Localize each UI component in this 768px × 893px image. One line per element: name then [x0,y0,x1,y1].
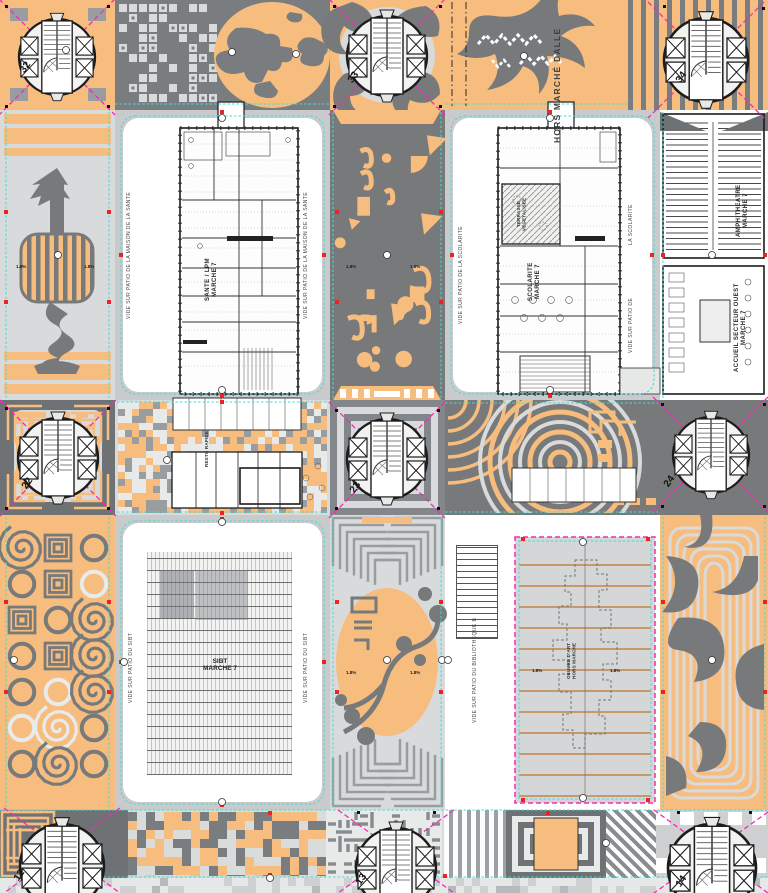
pattern-cell [300,430,307,437]
label-terrasse-line2: VEGETALISEE [521,186,526,242]
pattern-cell [223,444,230,451]
pattern-cell [321,493,327,500]
pattern-cell [286,437,293,444]
pattern-cell [176,886,184,893]
pattern-cell [125,472,132,479]
pattern-cell [232,878,240,886]
pattern-cell [146,451,153,458]
pattern-cell [46,608,70,632]
pattern-cell [240,878,248,886]
pattern-cell [218,866,227,875]
pattern-cell [368,742,397,771]
pattern-cell [18,616,26,624]
pattern-cell [361,150,372,167]
pattern-cell [152,886,160,893]
pattern-cell [281,848,290,857]
pattern-cell [314,493,321,500]
pattern-cell [263,830,272,839]
pattern-cell [139,465,146,472]
pattern-cell [118,493,125,500]
pattern-cell [280,878,288,886]
pattern-cell [128,878,136,886]
pattern-cell [568,878,576,886]
pattern-cell [179,94,187,102]
label-vide-sibt-right: VIDE SUR PATIO DU SIBT [303,598,309,738]
pattern-cell [632,878,640,886]
pattern-cell [146,848,155,857]
pattern-cell [321,500,327,507]
pattern-cell [251,444,258,451]
pattern-cell [367,289,375,299]
pattern-cell [300,444,307,451]
pattern-cell [218,839,227,848]
pattern-cell [164,830,173,839]
pattern-cell [202,57,205,60]
pattern-cell [230,444,237,451]
pattern-cell [132,486,139,493]
pattern-cell [472,886,480,893]
pattern-cell [146,465,153,472]
pattern-cell [230,437,237,444]
pattern-cell [288,886,296,893]
pattern-cell [265,430,272,437]
pattern-cell [321,437,327,444]
pattern-cell [528,886,536,893]
pattern-cell [248,878,256,886]
pattern-cell [118,430,125,437]
pattern-cell [299,857,308,866]
pattern-cell [173,812,182,821]
pattern-cell [144,878,152,886]
pattern-cell [321,423,327,430]
pattern-cell [118,444,125,451]
pattern-cell [146,875,155,876]
pattern-cell [308,812,317,821]
pattern-cell [54,580,62,588]
pattern-cell [152,37,155,40]
pattern-cell [164,848,173,857]
pattern-cell [314,486,321,493]
pattern-cell [137,866,146,875]
pattern-cell [299,821,308,830]
pattern-cell [223,437,230,444]
site-plan-canvas: HORS MARCHÉ DALLE VIDE SUR PATIO DE LA M… [0,0,768,893]
pattern-cell [296,878,304,886]
artwork-outline [553,545,617,800]
pattern-cell [118,472,125,479]
pattern-cell [290,866,299,875]
pattern-cell [181,430,188,437]
pattern-cell [146,416,153,423]
pattern-cell [125,409,132,416]
pattern-cell [139,4,147,12]
pattern-cell [224,878,232,886]
pattern-cell [160,416,167,423]
pattern-cell [544,878,552,886]
pattern-cell [155,848,164,857]
pattern-cell [189,64,197,72]
pattern-cell [119,4,127,12]
pattern-cell [153,416,160,423]
pattern-cell [139,402,146,409]
pattern-cell [149,64,157,72]
pattern-cell [118,458,125,465]
pattern-cell [159,94,167,102]
pattern-cell [308,821,317,830]
pattern-cell [512,878,520,886]
label-accueil-line1: ACCUEIL SECTEUR OUEST [734,280,741,376]
pattern-cell [536,886,544,893]
pattern-cell [218,830,227,839]
pattern-cell [168,886,176,893]
pattern-cell [128,830,137,839]
pattern-cell [368,553,397,582]
pattern-cell [293,430,300,437]
pattern-cell [314,423,321,430]
pattern-cell [357,197,370,216]
pattern-cell [223,430,230,437]
pattern-cell [317,821,326,830]
pattern-cell [132,423,139,430]
pattern-cell [188,437,195,444]
label-sante-line2: MARCHE 7 [212,225,219,335]
pattern-cell [132,87,135,90]
pattern-cell [504,878,512,886]
pattern-cell [164,866,173,875]
label-scolarite-line1: SCOLARITE [528,232,535,332]
pattern-cell [245,839,254,848]
pattern-cell [209,430,216,437]
pattern-cell [14,612,31,629]
pattern-cell [146,458,153,465]
pattern-cell [308,866,317,875]
pattern-cell [624,886,632,893]
pattern-cell [212,97,215,100]
pattern-cell [146,409,153,416]
pattern-cell [288,878,296,886]
pattern-cell [520,878,528,886]
pattern-cell [153,500,160,507]
slope-note: 1.8% [84,264,94,269]
pattern-cell [128,812,137,821]
pattern-cell [528,878,536,886]
pattern-cell [10,644,34,668]
pattern-cell [176,878,184,886]
pattern-cell [395,351,412,368]
pattern-cell [415,302,428,322]
pattern-cell [237,444,244,451]
pattern-cell [608,878,616,886]
label-accueil-line2: MARCHE 7 [741,280,748,376]
pattern-cell [137,812,146,821]
pattern-cell [139,486,146,493]
pattern-cell [552,886,560,893]
pattern-cell [640,886,648,893]
pattern-cell [174,437,181,444]
pattern-cell [112,878,120,886]
pattern-cell [560,886,568,893]
pattern-cell [254,839,263,848]
pattern-cell [640,878,648,886]
pattern-cell [265,444,272,451]
pattern-cell [258,430,265,437]
pattern-cell [290,857,299,866]
pattern-cell [182,839,191,848]
pattern-cell [146,444,153,451]
pattern-cell [307,409,314,416]
pattern-cell [200,812,209,821]
pattern-cell [153,409,160,416]
pattern-cell [464,878,472,886]
pattern-cell [182,848,191,857]
pattern-cell [616,886,624,893]
pattern-cell [167,437,174,444]
pattern-cell [195,430,202,437]
pattern-cell [139,451,146,458]
pattern-cell [139,94,147,102]
pattern-cell [286,444,293,451]
pattern-cell [159,14,167,22]
pattern-cell [272,437,279,444]
plan-rooms-strip2 [512,468,636,502]
pattern-cell [202,77,205,80]
pattern-cell [440,878,448,886]
pattern-cell [328,886,336,893]
pattern-cell [576,878,584,886]
pattern-cell [153,430,160,437]
pattern-cell [125,451,132,458]
pattern-cell [344,886,352,893]
pattern-cell [227,821,236,830]
pattern-cell [146,479,153,486]
pattern-cell [181,437,188,444]
pattern-cell [321,430,327,437]
pattern-cell [263,839,272,848]
orange-plaza-square [534,818,578,870]
pattern-cell [209,437,216,444]
pattern-cell [496,886,504,893]
label-resto-rapide: RESTO RAPIDE [204,418,209,480]
pattern-cell [472,878,480,886]
pattern-cell [167,444,174,451]
pattern-cell [244,437,251,444]
pattern-cell [385,190,393,202]
pattern-cell [132,465,139,472]
plan-linework [0,0,768,893]
pattern-cell [290,812,299,821]
pattern-cell [191,830,200,839]
pattern-cell [191,857,200,866]
pattern-cell [200,830,209,839]
pattern-cell [184,886,192,893]
pattern-cell [236,830,245,839]
pattern-cell [184,878,192,886]
pattern-cell [146,430,153,437]
pattern-cell [308,875,317,876]
pattern-cell [344,878,352,886]
pattern-cell [307,437,314,444]
pattern-cell [209,875,218,876]
label-la-scolarite: LA SCOLARITE [628,180,634,270]
pattern-cell [139,423,146,430]
pattern-cell [125,416,132,423]
pattern-cell [164,875,173,876]
pattern-cell [146,437,153,444]
pattern-cell [125,430,132,437]
pattern-cell [592,878,600,886]
pattern-cell [760,878,768,886]
pattern-cell [152,47,155,50]
pattern-cell [188,430,195,437]
pattern-cell [272,848,281,857]
trophy-figure [21,168,93,374]
label-vide-bibliotheque: VIDE SUR PATIO DU BIBLIOTHEQUE B [472,588,478,752]
stair-tower-32 [19,13,95,100]
pattern-cell [281,857,290,866]
pattern-cell [411,156,428,173]
pattern-cell [167,430,174,437]
pattern-cell [361,546,394,579]
pattern-cell [245,857,254,866]
pattern-cell [153,458,160,465]
pattern-cell [520,886,528,893]
pattern-cell [146,866,155,875]
pattern-cell [237,430,244,437]
slope-note: 1.8% [610,668,620,673]
pattern-cell [480,878,488,886]
pattern-cell [132,416,139,423]
pattern-cell [272,830,281,839]
pattern-cell [200,839,209,848]
pattern-cell [173,830,182,839]
pattern-cell [480,886,488,893]
pattern-cell [139,479,146,486]
pattern-cell [195,437,202,444]
pattern-cell [272,812,281,821]
pattern-cell [272,857,281,866]
pattern-cell [153,451,160,458]
pattern-cell [164,812,173,821]
pattern-cell [227,857,236,866]
pattern-cell [307,444,314,451]
pattern-cell [299,839,308,848]
pattern-cell [279,444,286,451]
pattern-cell [216,444,223,451]
pattern-cell [584,886,592,893]
pattern-cell [139,458,146,465]
pattern-cell [46,680,70,704]
pattern-cell [118,486,125,493]
pattern-cell [160,409,167,416]
pattern-cell [237,437,244,444]
pattern-cell [568,886,576,893]
pattern-cell [139,84,147,92]
pattern-cell [227,875,236,876]
pattern-cell [251,430,258,437]
plan-rooms-strip [173,398,301,430]
pattern-cell [139,54,147,62]
pattern-cell [153,437,160,444]
pattern-cell [236,812,245,821]
pattern-cell [286,430,293,437]
pattern-cell [146,486,153,493]
pattern-cell [321,402,327,409]
pattern-cell [10,572,34,596]
stair-tower-34 [664,12,748,109]
pattern-cell [251,437,258,444]
pattern-cell [125,500,132,507]
pattern-cell [456,886,464,893]
pattern-cell [375,560,400,585]
pattern-cell [299,848,308,857]
pattern-cell [209,444,216,451]
pattern-cell [200,848,209,857]
pattern-cell [136,886,144,893]
pattern-cell [199,34,207,42]
pattern-cell [128,821,137,830]
pattern-cell [169,4,177,12]
pattern-cell [552,878,560,886]
pattern-cell [160,886,168,893]
pattern-cell [192,886,200,893]
pattern-cell [281,875,290,876]
pattern-cell [153,444,160,451]
pattern-cell [128,848,137,857]
pattern-cell [464,886,472,893]
stair-tower-13 [356,822,436,893]
label-scolarite-line2: MARCHE 7 [535,232,542,332]
pattern-cell [153,465,160,472]
pattern-cell [160,472,167,479]
pattern-cell [173,821,182,830]
label-vide-sur-patio-de: VIDE SUR PATIO DE [628,280,634,370]
pattern-cell [125,486,132,493]
pattern-cell [153,472,160,479]
pattern-cell [132,409,139,416]
pattern-cell [290,839,299,848]
pattern-cell [293,437,300,444]
pattern-cell [307,486,314,493]
pattern-cell [263,821,272,830]
pattern-cell [218,812,227,821]
pattern-cell [149,74,157,82]
pattern-cell [236,839,245,848]
pattern-cell [608,886,616,893]
pattern-cell [378,553,407,582]
pattern-cell [496,878,504,886]
pattern-cell [173,848,182,857]
pattern-cell [54,652,62,660]
pattern-cell [149,14,157,22]
pattern-cell [200,878,208,886]
pattern-cell [149,24,157,32]
pattern-cell [209,839,218,848]
pattern-cell [173,866,182,875]
pattern-cell [191,839,200,848]
pattern-cell [307,465,314,472]
pattern-cell [179,34,187,42]
pattern-cell [128,886,136,893]
pattern-cell [281,821,290,830]
pattern-cell [191,812,200,821]
pattern-cell [72,635,113,677]
pattern-cell [118,409,125,416]
bottom-mosaic [128,812,326,876]
pattern-cell [307,458,314,465]
pattern-cell [173,839,182,848]
pattern-cell [76,496,82,500]
pattern-cell [132,472,139,479]
